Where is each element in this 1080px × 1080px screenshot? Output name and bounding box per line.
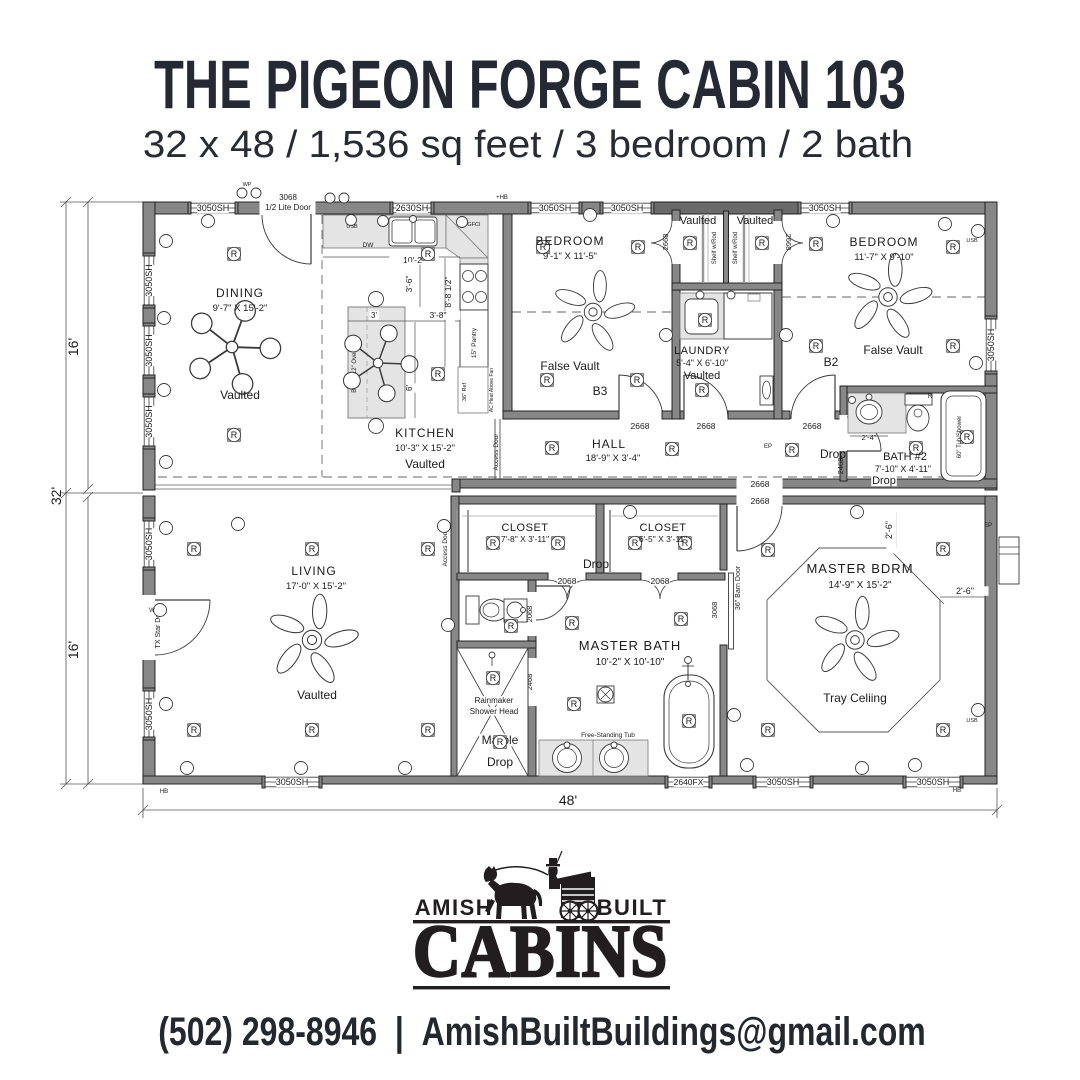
svg-text:CABINS: CABINS [413, 910, 668, 992]
